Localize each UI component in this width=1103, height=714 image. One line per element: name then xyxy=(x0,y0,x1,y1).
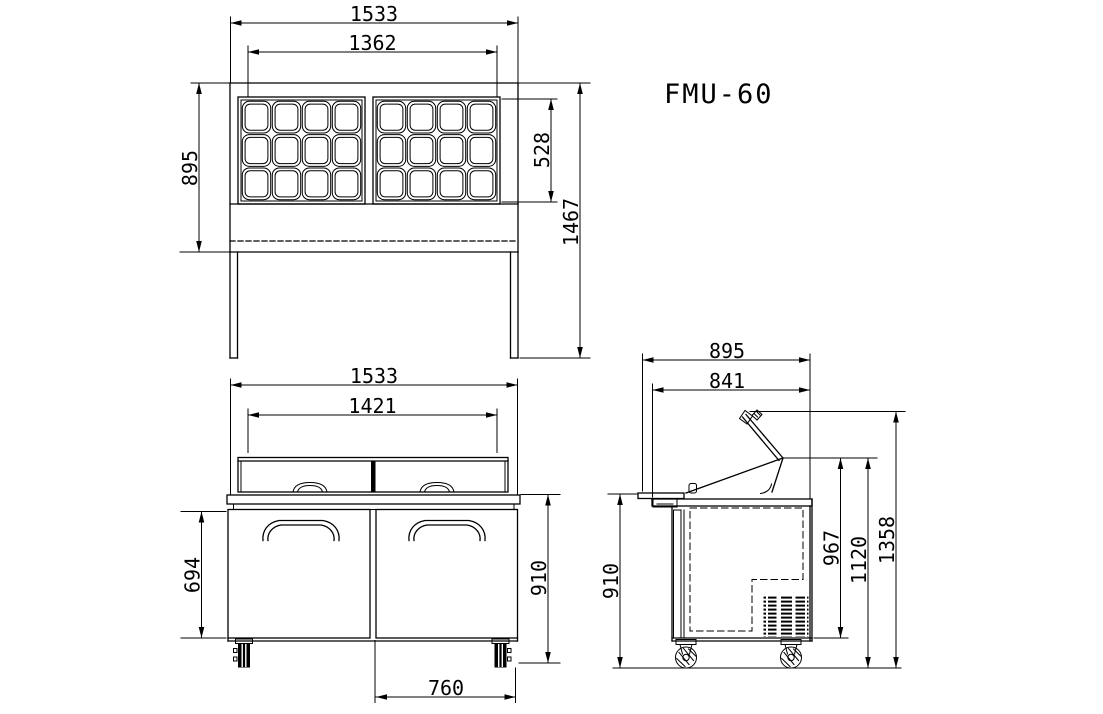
caster-side-front xyxy=(676,640,697,669)
dim-plan-pan-area-depth: 528 xyxy=(502,99,557,202)
dim-front-door-height: 694 xyxy=(181,512,227,639)
hood-center-divider xyxy=(371,461,376,492)
dim-label-front-760: 760 xyxy=(428,676,464,700)
side-open-lid xyxy=(686,410,783,494)
front-hood xyxy=(238,458,508,493)
front-worktop xyxy=(227,495,520,510)
food-pan xyxy=(275,171,298,197)
compressor-vent xyxy=(796,596,809,638)
dim-plan-depth: 895 xyxy=(178,83,229,252)
dim-label-plan-1467: 1467 xyxy=(559,198,583,246)
pan-frame xyxy=(376,100,497,201)
food-pan xyxy=(335,171,358,197)
door-handle-right xyxy=(409,521,485,541)
food-pan xyxy=(380,171,403,197)
compressor-vent xyxy=(764,596,777,638)
food-pan xyxy=(410,137,433,163)
food-pan xyxy=(410,104,433,130)
door-right xyxy=(376,510,518,639)
dim-front-caster-span: 760 xyxy=(375,641,516,703)
dim-front-hood-width: 1421 xyxy=(248,394,497,453)
cutting-board xyxy=(638,493,684,499)
fmu-60-drawing: 1533 1362 895 528 1467 xyxy=(0,0,1103,714)
side-worktop xyxy=(638,484,812,508)
door-handle-left xyxy=(263,521,339,541)
food-pan xyxy=(335,137,358,163)
dim-label-side-910: 910 xyxy=(599,563,623,599)
front-casters xyxy=(234,639,512,668)
dim-label-plan-528: 528 xyxy=(530,132,554,168)
food-pan xyxy=(245,137,268,163)
door-left xyxy=(228,510,370,639)
dim-label-side-1358: 1358 xyxy=(875,516,899,564)
food-pan xyxy=(305,171,328,197)
food-pan xyxy=(275,104,298,130)
dim-side-overall-depth: 895 xyxy=(643,339,811,499)
pan-frame xyxy=(373,97,500,204)
dim-front-worktop-height: 910 xyxy=(519,495,560,664)
food-pan xyxy=(470,137,493,163)
dim-label-plan-1362: 1362 xyxy=(348,31,396,55)
caster-front-right xyxy=(492,639,511,668)
compressor-vent xyxy=(780,596,793,638)
food-pan xyxy=(470,171,493,197)
food-pan xyxy=(410,171,433,197)
pan-frame xyxy=(241,100,362,201)
pan-grid xyxy=(238,97,500,204)
lid-handle-right xyxy=(417,483,457,493)
food-pan xyxy=(275,137,298,163)
front-doors xyxy=(228,510,518,642)
technical-drawing-canvas: 1533 1362 895 528 1467 xyxy=(0,0,1103,714)
dim-side-worktop-depth: 841 xyxy=(653,369,811,497)
model-title: FMU-60 xyxy=(664,79,774,110)
dim-label-side-841: 841 xyxy=(709,369,745,393)
dim-side-lid-hinge-height: 1120 xyxy=(847,458,871,668)
dim-label-side-967: 967 xyxy=(820,530,844,566)
dim-label-plan-1533: 1533 xyxy=(350,2,398,26)
caster-front-left xyxy=(234,639,253,668)
food-pan xyxy=(440,171,463,197)
food-pan xyxy=(305,137,328,163)
lid-handle-left xyxy=(290,483,330,493)
front-view: 1533 1421 694 910 760 xyxy=(181,364,561,703)
dim-plan-pan-area-width: 1362 xyxy=(248,31,497,97)
pan-frame xyxy=(238,97,365,204)
food-pan xyxy=(305,104,328,130)
food-pan xyxy=(440,137,463,163)
side-view: 895 841 910 967 1120 1358 xyxy=(599,339,905,668)
dim-label-front-1421: 1421 xyxy=(348,394,396,418)
dim-label-front-1533: 1533 xyxy=(350,364,398,388)
plan-side-rails xyxy=(230,252,518,358)
food-pan xyxy=(380,137,403,163)
food-pan xyxy=(380,104,403,130)
dim-label-front-694: 694 xyxy=(181,557,205,593)
dim-label-front-910: 910 xyxy=(527,560,551,596)
door-side-profile xyxy=(674,510,682,638)
dim-label-plan-895: 895 xyxy=(178,150,202,186)
caster-side-rear xyxy=(781,640,802,669)
plan-view: 1533 1362 895 528 1467 xyxy=(178,2,590,358)
dim-side-worktop-height: 910 xyxy=(599,494,637,668)
food-pan xyxy=(335,104,358,130)
dim-label-side-1120: 1120 xyxy=(847,536,871,584)
dim-plan-overall-height: 1467 xyxy=(519,83,590,358)
food-pan xyxy=(470,104,493,130)
food-pan xyxy=(440,104,463,130)
dim-label-side-895: 895 xyxy=(709,339,745,363)
food-pan xyxy=(245,171,268,197)
food-pan xyxy=(245,104,268,130)
